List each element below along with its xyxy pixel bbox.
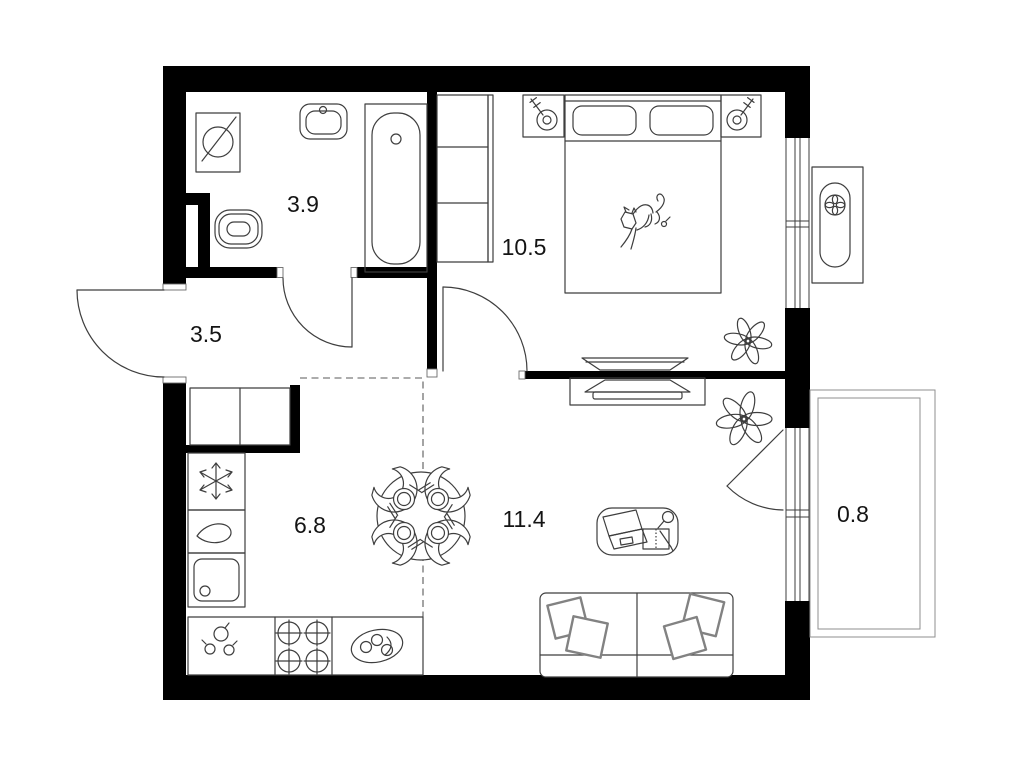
tv-icon [570, 358, 705, 405]
duct-shaft [198, 193, 210, 278]
ac-unit-icon [812, 167, 863, 283]
bathtub-icon [365, 104, 427, 272]
jamb [163, 284, 186, 290]
fruit-plate-icon [348, 625, 406, 667]
floor-plan: 3.9 10.5 3.5 6.8 11.4 0.8 [0, 0, 1024, 768]
room-label-bathroom: 3.9 [287, 191, 319, 217]
kettle-icon [197, 524, 231, 543]
dining-table [367, 462, 475, 570]
wall-top [163, 66, 810, 92]
wall-bathroom-bedroom-divider [427, 92, 437, 369]
wardrobe [437, 95, 493, 262]
room-label-hallway: 3.5 [190, 321, 222, 347]
double-bed-icon [565, 95, 721, 293]
toilet-icon [215, 210, 262, 248]
bathroom-door-icon [283, 278, 352, 347]
washing-machine-icon [196, 113, 240, 172]
faucet-icon [214, 627, 228, 641]
sconce-right-icon [727, 98, 754, 130]
room-label-balcony: 0.8 [837, 501, 869, 527]
kitchen-counter [188, 617, 423, 675]
wall-right-top [785, 66, 810, 138]
room-label-kitchen: 6.8 [294, 512, 326, 538]
wall-left-lower [163, 383, 186, 700]
entrance-door-icon [77, 290, 164, 377]
wall-bottom [163, 675, 810, 700]
cat-icon [621, 194, 670, 249]
sofa [540, 593, 733, 677]
room-label-living-room: 11.4 [502, 506, 545, 532]
wall-left-upper [163, 66, 186, 284]
jamb [519, 371, 525, 379]
bathroom-sink-icon [300, 104, 347, 139]
jamb [427, 369, 437, 377]
bedroom-window [785, 138, 810, 308]
kitchen-cabinet [188, 510, 245, 553]
balcony-outline [810, 390, 935, 637]
wall-closet-south [186, 445, 300, 453]
fridge-icon [188, 453, 245, 510]
sconce-left-icon [530, 98, 557, 130]
wall-right-mid [785, 308, 810, 428]
wall-closet-east [290, 385, 300, 453]
floor-plan-canvas: 3.9 10.5 3.5 6.8 11.4 0.8 [0, 0, 1024, 768]
nightstand-left [523, 95, 564, 137]
jamb [163, 377, 186, 383]
jamb [351, 268, 357, 278]
stove-icon [276, 620, 330, 674]
pillow-icon [566, 616, 608, 658]
jamb [277, 268, 283, 278]
plant-bedroom-icon [723, 317, 772, 366]
plant-living-icon [715, 390, 772, 447]
nightstand-right [721, 95, 761, 137]
hallway-closet [190, 388, 290, 445]
balcony-door-window [785, 428, 810, 601]
wall-right-bottom [785, 601, 810, 700]
room-label-bedroom: 10.5 [502, 234, 547, 260]
coffee-table [597, 508, 678, 555]
kitchen-sink-icon [188, 553, 245, 607]
bedroom-door-icon [443, 287, 527, 371]
